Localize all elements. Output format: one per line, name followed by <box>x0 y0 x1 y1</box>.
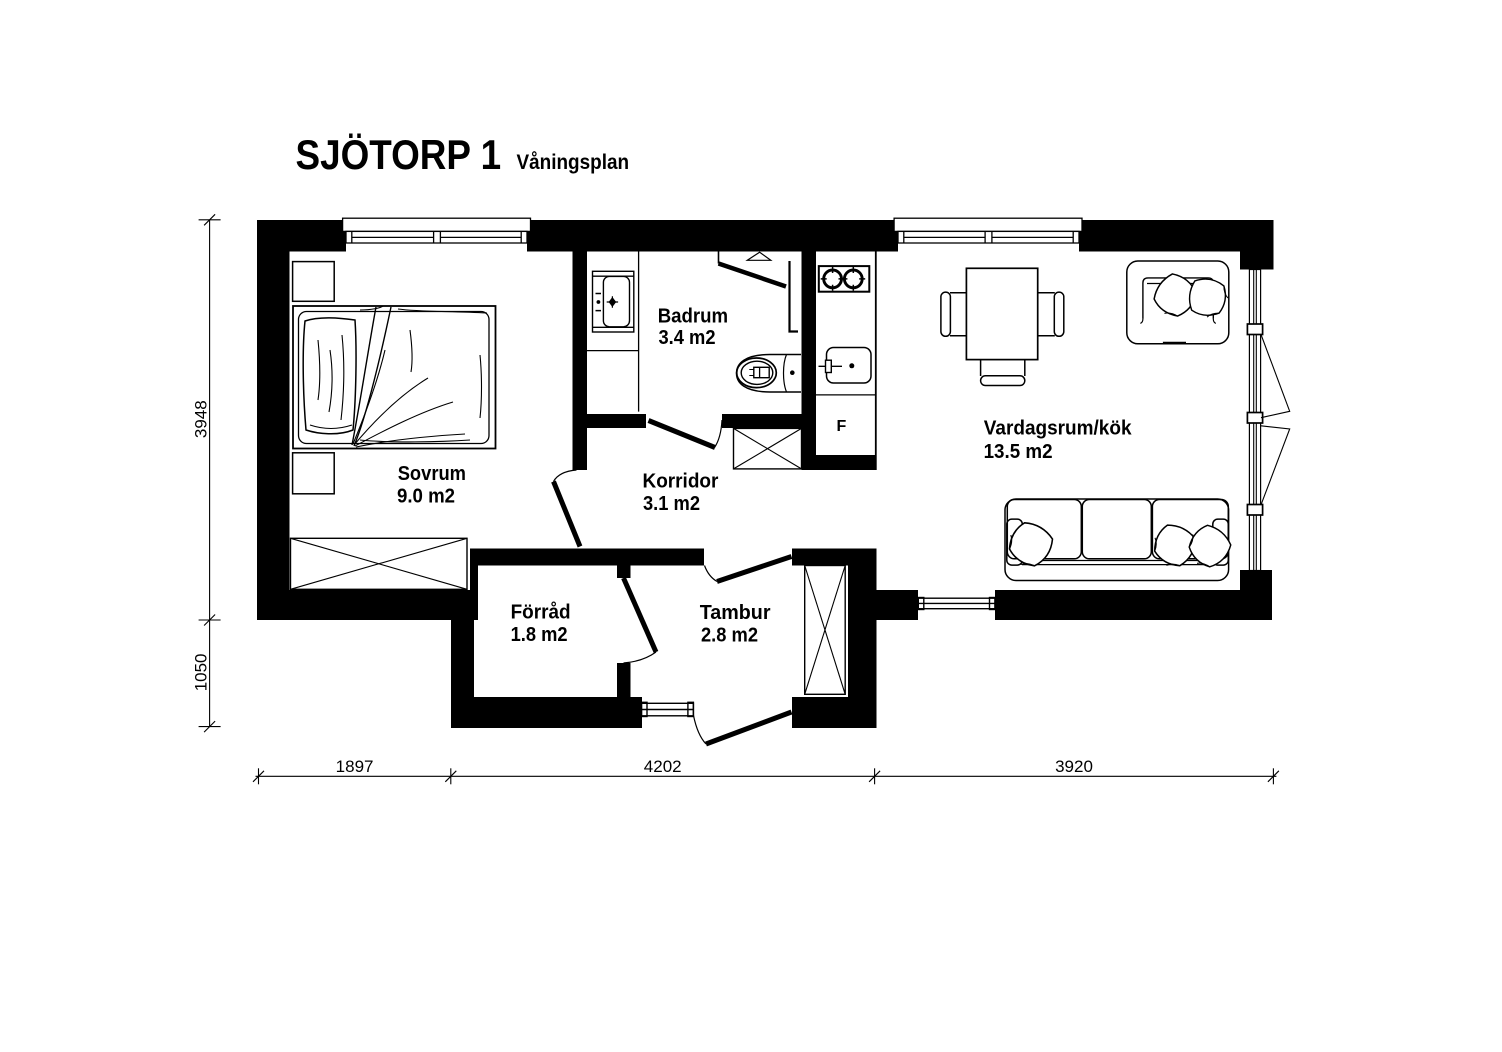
svg-text:13.5 m2: 13.5 m2 <box>984 441 1053 463</box>
svg-text:3.4 m2: 3.4 m2 <box>659 327 716 349</box>
svg-text:Korridor: Korridor <box>643 471 719 493</box>
svg-text:9.0 m2: 9.0 m2 <box>397 485 455 507</box>
svg-text:1050: 1050 <box>192 653 211 691</box>
svg-text:3948: 3948 <box>192 400 211 438</box>
svg-text:3.1 m2: 3.1 m2 <box>643 493 700 515</box>
svg-text:F: F <box>837 418 847 435</box>
svg-text:Våningsplan: Våningsplan <box>517 151 630 174</box>
svg-text:3920: 3920 <box>1055 757 1093 776</box>
svg-text:Förråd: Förråd <box>511 601 571 624</box>
svg-text:4202: 4202 <box>644 757 682 776</box>
svg-text:Badrum: Badrum <box>658 305 728 327</box>
svg-text:2.8 m2: 2.8 m2 <box>701 624 758 646</box>
svg-text:Tambur: Tambur <box>700 602 771 624</box>
svg-text:Sovrum: Sovrum <box>398 463 466 485</box>
svg-text:SJÖTORP 1: SJÖTORP 1 <box>296 131 502 178</box>
svg-text:1.8 m2: 1.8 m2 <box>511 624 568 646</box>
svg-text:Vardagsrum/kök: Vardagsrum/kök <box>984 417 1133 439</box>
svg-text:1897: 1897 <box>336 757 374 776</box>
